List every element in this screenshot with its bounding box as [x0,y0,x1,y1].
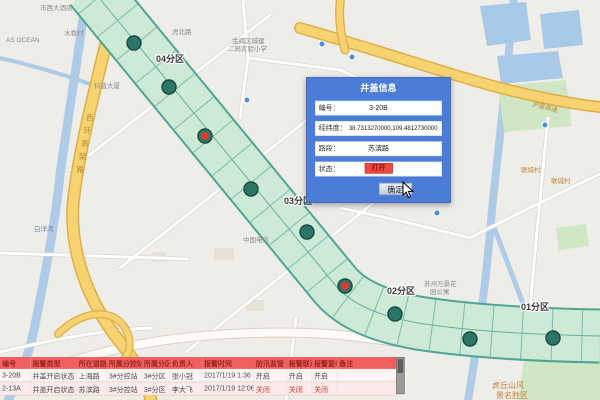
column-header: 所在道路 [76,357,106,369]
poi-icon [542,122,548,128]
map-label: 景名胜区 [496,390,528,400]
popup-fields: 编号：3-20B经纬度：38.7313270000,109.4812730000… [307,101,451,177]
column-header: 报警复核 [312,357,337,369]
manhole-marker-closed[interactable] [463,332,477,346]
table-cell: 井盖开启状态 [30,369,76,382]
manhole-marker-closed[interactable] [388,307,402,321]
table-cell: 关闭 [253,382,286,395]
map-label: 科普大厦 [94,81,121,90]
table-row[interactable]: 3-20B井盖开启状态上海路3#分控站3#分区张小冠2017/1/19 1:36… [0,369,396,382]
column-header: 报警联动 [286,357,311,369]
popup-field-coords: 经纬度：38.7313270000,109.4812730000 [315,121,442,136]
manhole-marker-closed[interactable] [300,225,314,239]
table-scrollbar[interactable] [396,357,404,394]
marker-ring [546,331,560,345]
table-cell: 开启 [312,369,337,382]
map-road-label-char: 路 [76,164,84,174]
marker-ring [162,80,176,94]
poi-icon [319,41,325,47]
map-label: 苏州万景花 [424,279,457,288]
column-header: 报警类型 [30,357,76,369]
poi-icon [349,54,355,60]
manhole-marker-open[interactable] [338,279,352,293]
table-cell: 李大飞 [169,382,201,395]
map-label: 水香村 [64,28,84,37]
table-cell [337,369,397,382]
table-cell: 张小冠 [169,369,201,382]
table-cell: 苏滨路 [76,382,106,395]
table-cell: 3-20B [0,369,30,382]
column-header: 防汛监管 [253,357,286,369]
marker-ring [463,332,477,346]
zone-label: 02分区 [387,285,415,296]
table-cell: 上海路 [76,369,106,382]
map-canvas[interactable]: 市西大酒店AS OCEAN水香村虎北路金阊区城建二局实验小学科普大厦中国电信白洋… [0,0,600,400]
manhole-marker-closed[interactable] [127,36,141,50]
table-cell: 关闭 [312,382,337,395]
popup-field-label: 编号： [319,102,340,115]
table-cell: 3#分控站 [106,382,141,395]
popup-field-label: 状态： [319,162,340,175]
marker-ring [300,225,314,239]
manhole-marker-closed[interactable] [244,182,258,196]
table-cell: 3#分控站 [106,369,141,382]
marker-ring [388,307,402,321]
popup-field-label: 路段： [319,142,340,155]
manhole-info-popup: 井盖信息 编号：3-20B经纬度：38.7313270000,109.48127… [306,77,451,203]
column-header: 所属分区 [141,357,169,369]
app-window: 市西大酒店AS OCEAN水香村虎北路金阊区城建二局实验小学科普大厦中国电信白洋… [0,0,600,400]
table-row[interactable]: 2-13A井盖开启状态苏滨路3#分控站3#分区李大飞2017/1/19 12:0… [0,382,396,395]
table-cell [337,382,397,395]
manhole-marker-open[interactable] [198,129,212,143]
table-cell: 关闭 [286,382,311,395]
map-road-label-char: 高 [81,138,89,148]
poi-icon [434,210,440,216]
marker-open-core [201,132,209,140]
column-header: 编号 [0,357,30,369]
marker-ring [127,36,141,50]
map-road-label-char: 环 [84,126,92,135]
map-label: 虎北路 [172,27,192,36]
table-cell: 井盖开启状态 [30,382,76,395]
map-label: 联城村 [521,165,541,174]
table-cell: 2-13A [0,382,30,395]
status-open-button[interactable]: 打开 [364,163,392,174]
map-road-label-char: 西 [86,113,94,122]
zone-label: 01分区 [521,301,549,312]
map-label: 市西大酒店 [40,3,73,12]
column-header: 负责人 [169,357,201,369]
map-label: 虎丘山风 [492,380,524,390]
map-label: 金阊区城建 [232,36,265,45]
map-road-label-char: 架 [79,152,87,161]
alarm-table-panel: 编号报警类型所在道路所属分控站所属分区负责人报警时间防汛监管报警联动报警复核备注… [0,357,405,396]
map-label: 白洋湾 [34,224,54,233]
popup-field-label: 经纬度： [319,122,347,135]
table-cell: 2017/1/19 12:06 [202,382,254,395]
popup-field-code: 编号：3-20B [315,101,442,116]
marker-open-core [341,282,349,290]
poi-icon [244,97,250,103]
table-scrollbar-thumb[interactable] [398,359,404,373]
marker-ring [244,182,258,196]
map-label: AS OCEAN [6,37,40,44]
alarm-table-header-row: 编号报警类型所在道路所属分控站所属分区负责人报警时间防汛监管报警联动报警复核备注 [0,357,396,369]
column-header: 所属分控站 [106,357,141,369]
map-label: 二局实验小学 [228,44,268,53]
table-cell: 2017/1/19 1:36 [202,369,254,382]
column-header: 备注 [337,357,397,369]
zone-label: 04分区 [156,53,184,64]
manhole-marker-closed[interactable] [162,80,176,94]
table-cell: 开启 [286,369,311,382]
popup-field-status: 状态：打开 [315,162,442,177]
map-label: 联城村 [551,176,571,185]
manhole-marker-closed[interactable] [546,331,560,345]
column-header: 报警时间 [202,357,254,369]
popup-title: 井盖信息 [307,81,451,95]
mouse-cursor-icon [402,181,416,199]
map-label: 园公寓 [430,287,450,296]
table-cell: 3#分区 [141,382,169,395]
table-cell: 开启 [253,369,286,382]
table-cell: 3#分区 [141,369,169,382]
alarm-table: 编号报警类型所在道路所属分控站所属分区负责人报警时间防汛监管报警联动报警复核备注… [0,357,397,396]
popup-field-road: 路段：苏滨路 [315,141,442,156]
map-label: 中国电信 [243,235,270,244]
